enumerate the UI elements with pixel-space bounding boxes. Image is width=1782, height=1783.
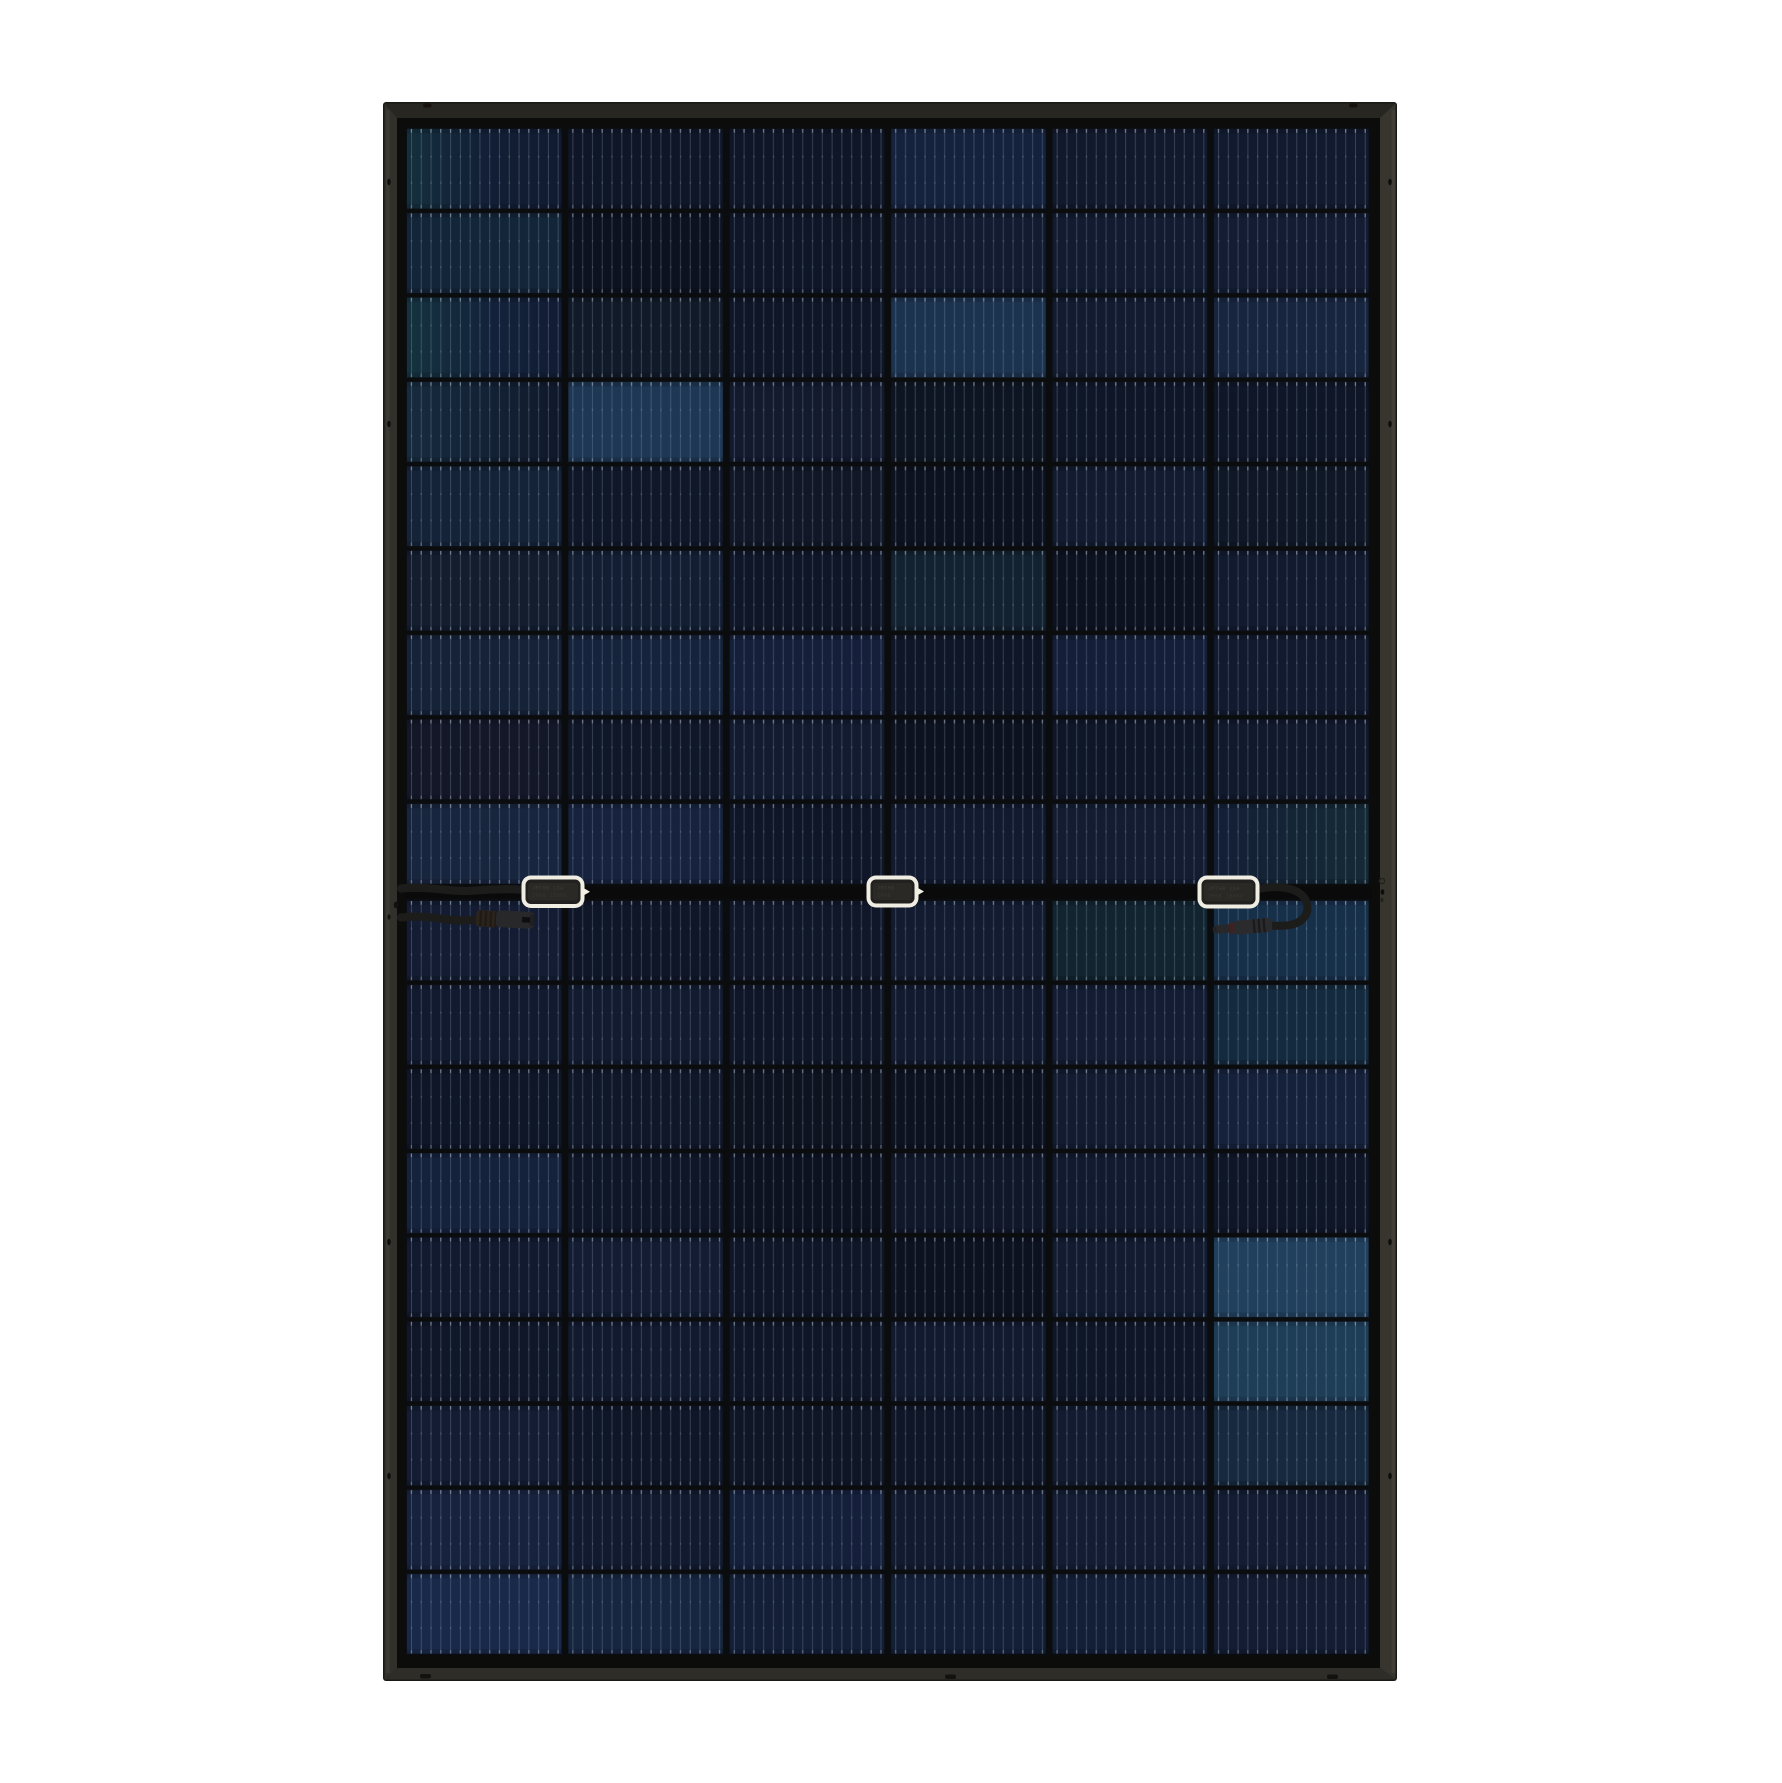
svg-text:JMTHB 12A: JMTHB 12A xyxy=(1208,886,1240,892)
svg-text:IP68 1500V: IP68 1500V xyxy=(532,893,568,899)
svg-text:IP68: IP68 xyxy=(877,893,891,899)
svg-text:JMTHB 12A: JMTHB 12A xyxy=(532,886,564,892)
svg-text:JMTHB: JMTHB xyxy=(877,885,895,891)
svg-text:IP68 1500V: IP68 1500V xyxy=(1208,893,1244,899)
